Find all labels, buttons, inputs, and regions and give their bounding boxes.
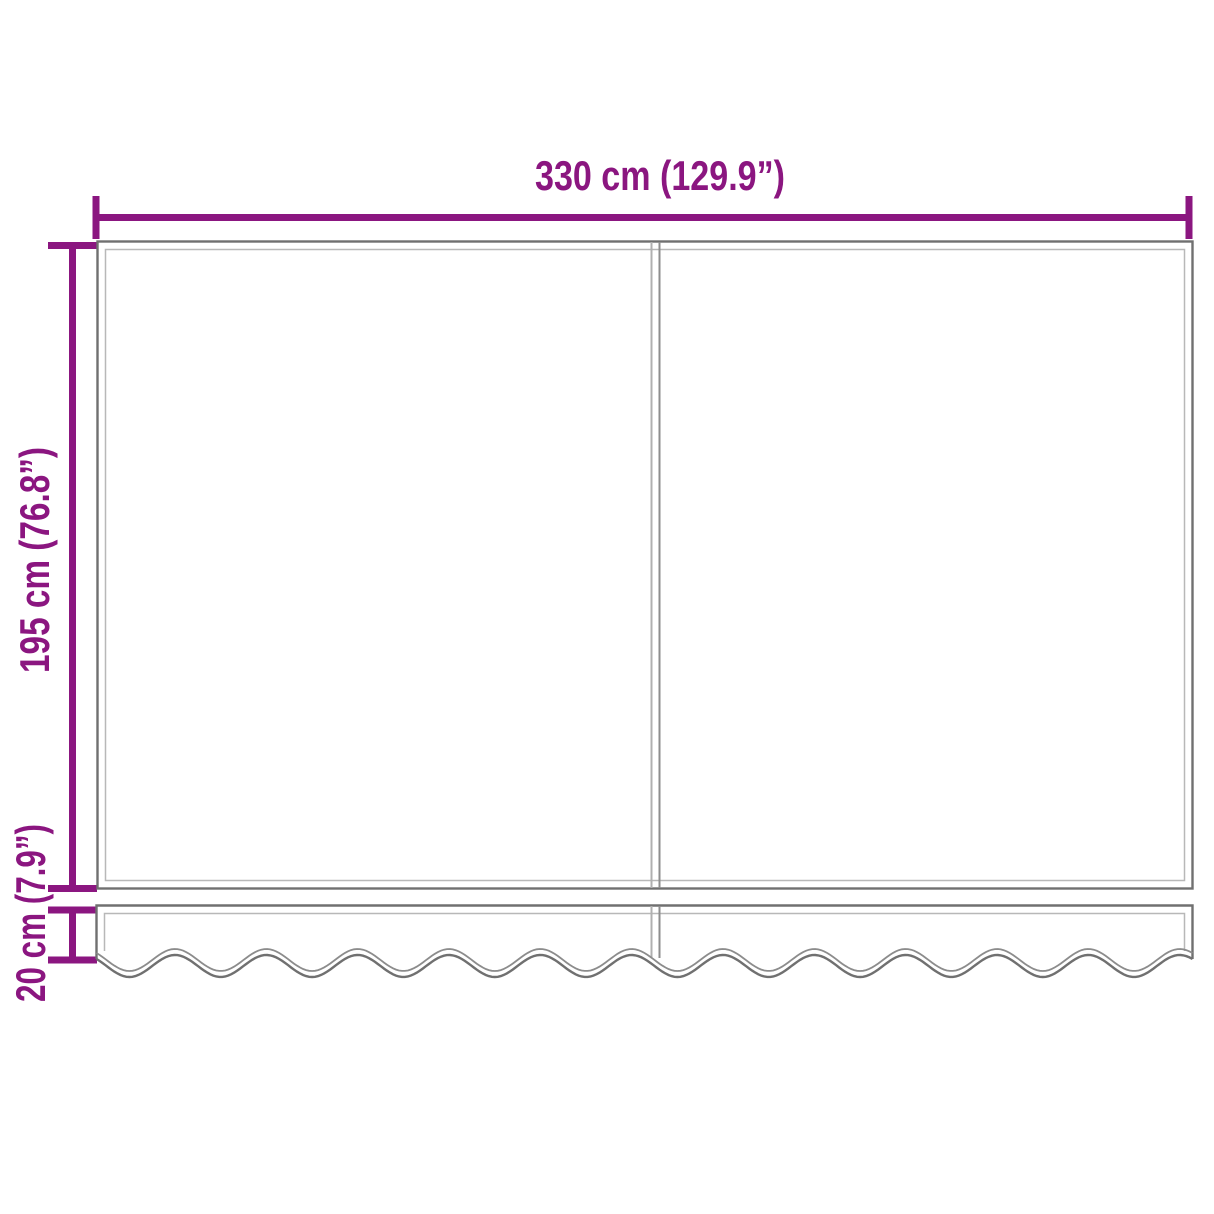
valance-dimension-label: 20 cm (7.9”): [7, 824, 54, 1002]
awning-fabric: [98, 242, 1193, 889]
width-dimension: 330 cm (129.9”): [96, 152, 1189, 239]
valance: [97, 906, 1193, 978]
awning-outline: [98, 242, 1193, 889]
valance-dimension: 20 cm (7.9”): [7, 824, 97, 1002]
valance-hem-line: [105, 914, 1185, 952]
awning-hem-line: [106, 250, 1185, 881]
height-dimension-label: 195 cm (76.8”): [11, 447, 58, 673]
height-dimension: 195 cm (76.8”): [11, 246, 97, 889]
width-dimension-label: 330 cm (129.9”): [535, 152, 785, 199]
diagram-canvas: 330 cm (129.9”) 195 cm (76.8”) 20 cm (7.…: [0, 0, 1214, 1214]
awning-dimension-diagram: 330 cm (129.9”) 195 cm (76.8”) 20 cm (7.…: [0, 0, 1214, 1214]
